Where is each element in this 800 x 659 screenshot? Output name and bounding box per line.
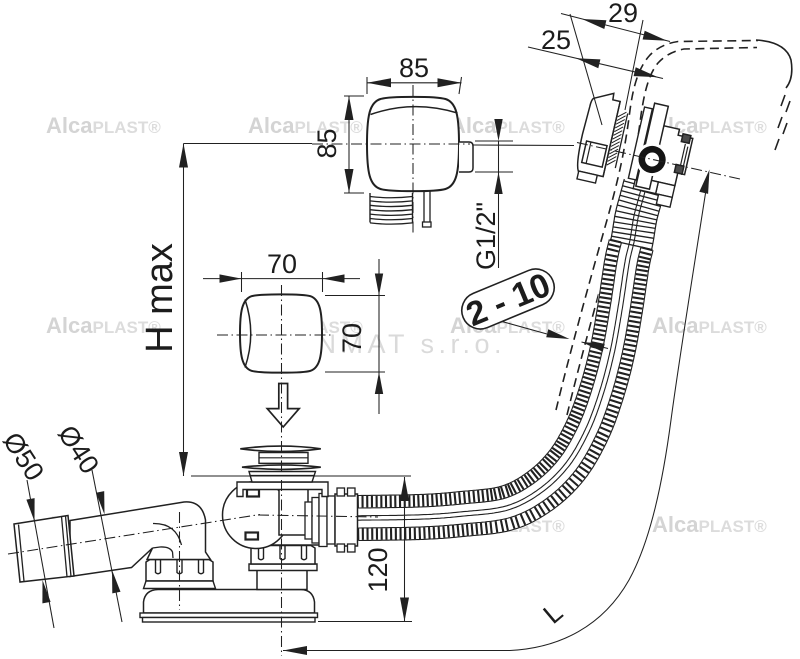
svg-text:H max: H max — [139, 243, 181, 353]
svg-text:G1/2": G1/2" — [471, 202, 501, 270]
svg-text:85: 85 — [399, 53, 429, 83]
svg-text:85: 85 — [312, 128, 342, 158]
svg-text:29: 29 — [608, 0, 638, 28]
svg-text:70: 70 — [267, 249, 297, 279]
svg-text:70: 70 — [337, 323, 367, 353]
svg-text:120: 120 — [363, 547, 393, 592]
svg-text:25: 25 — [541, 25, 571, 55]
